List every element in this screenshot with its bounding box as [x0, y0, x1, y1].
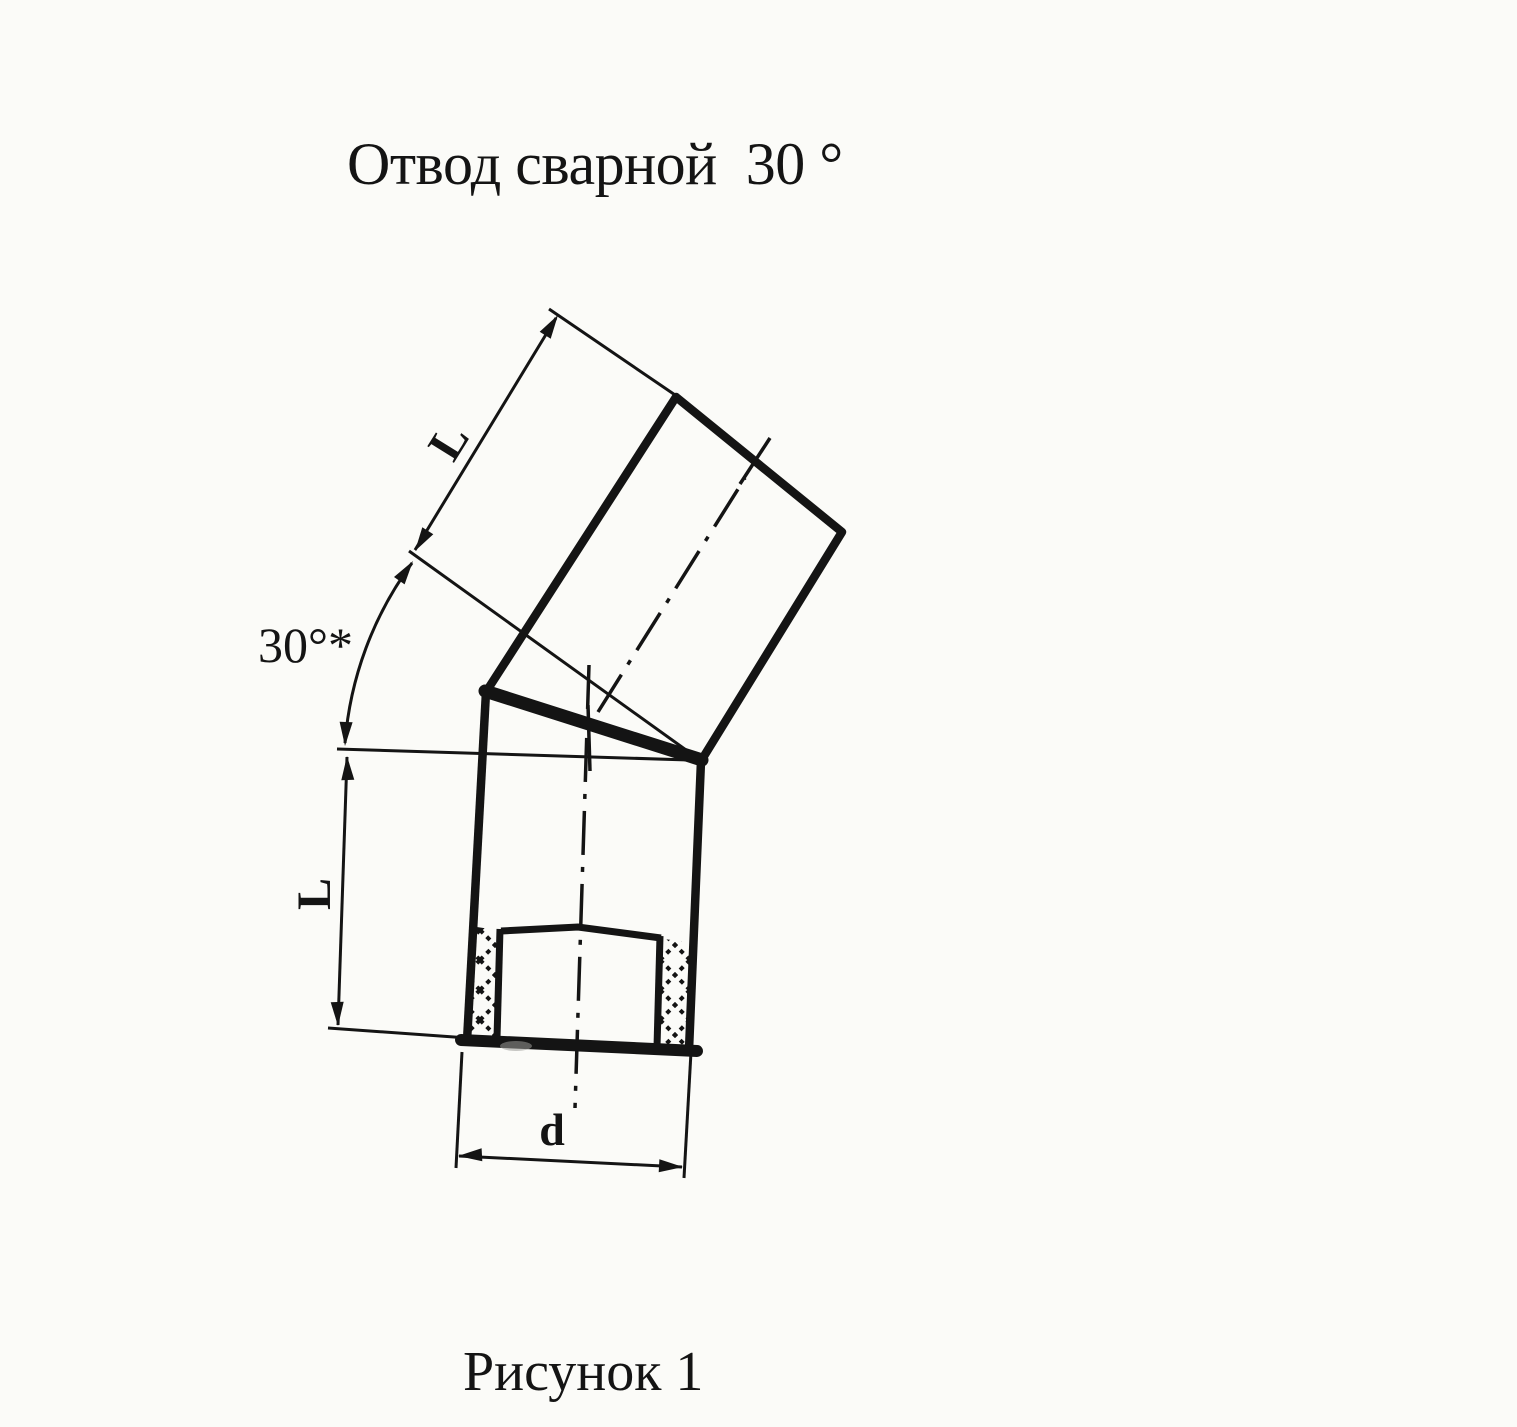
arrow-L-upper-top: [540, 315, 558, 339]
scan-smudge: [500, 1041, 532, 1051]
dim-label-angle: 30°*: [258, 617, 353, 673]
scanned-drawing-page: Отвод сварной 30 °: [0, 0, 1517, 1427]
extension-line-top-face: [549, 309, 681, 399]
dimension-line-d: [459, 1156, 682, 1167]
socket-inner-wall-left: [497, 929, 500, 1038]
socket-hatch-right: [660, 939, 690, 1049]
centerline-tick-weld: [588, 705, 590, 771]
arrow-L-upper-bottom: [415, 527, 433, 551]
arrow-arc-top: [394, 561, 413, 584]
pipe-body-fills: [467, 397, 842, 1050]
extension-line-L-lower-bottom: [328, 1028, 468, 1038]
arrow-L-lower-bottom: [331, 1002, 344, 1026]
dim-label-length-lower: L: [288, 878, 341, 910]
arrow-L-lower-top: [341, 756, 354, 780]
elbow-technical-drawing: Отвод сварной 30 °: [0, 0, 1517, 1427]
dim-label-diameter: d: [539, 1104, 565, 1155]
extension-line-d-left: [456, 1052, 462, 1168]
socket-hatch-left: [466, 926, 497, 1038]
extension-line-d-right: [684, 1052, 691, 1178]
figure-caption: Рисунок 1: [463, 1341, 703, 1403]
arrow-arc-bottom: [340, 722, 353, 746]
angle-arc: [345, 563, 412, 743]
socket-inner-wall-right: [657, 936, 660, 1047]
drawing-title: Отвод сварной 30 °: [347, 131, 843, 197]
